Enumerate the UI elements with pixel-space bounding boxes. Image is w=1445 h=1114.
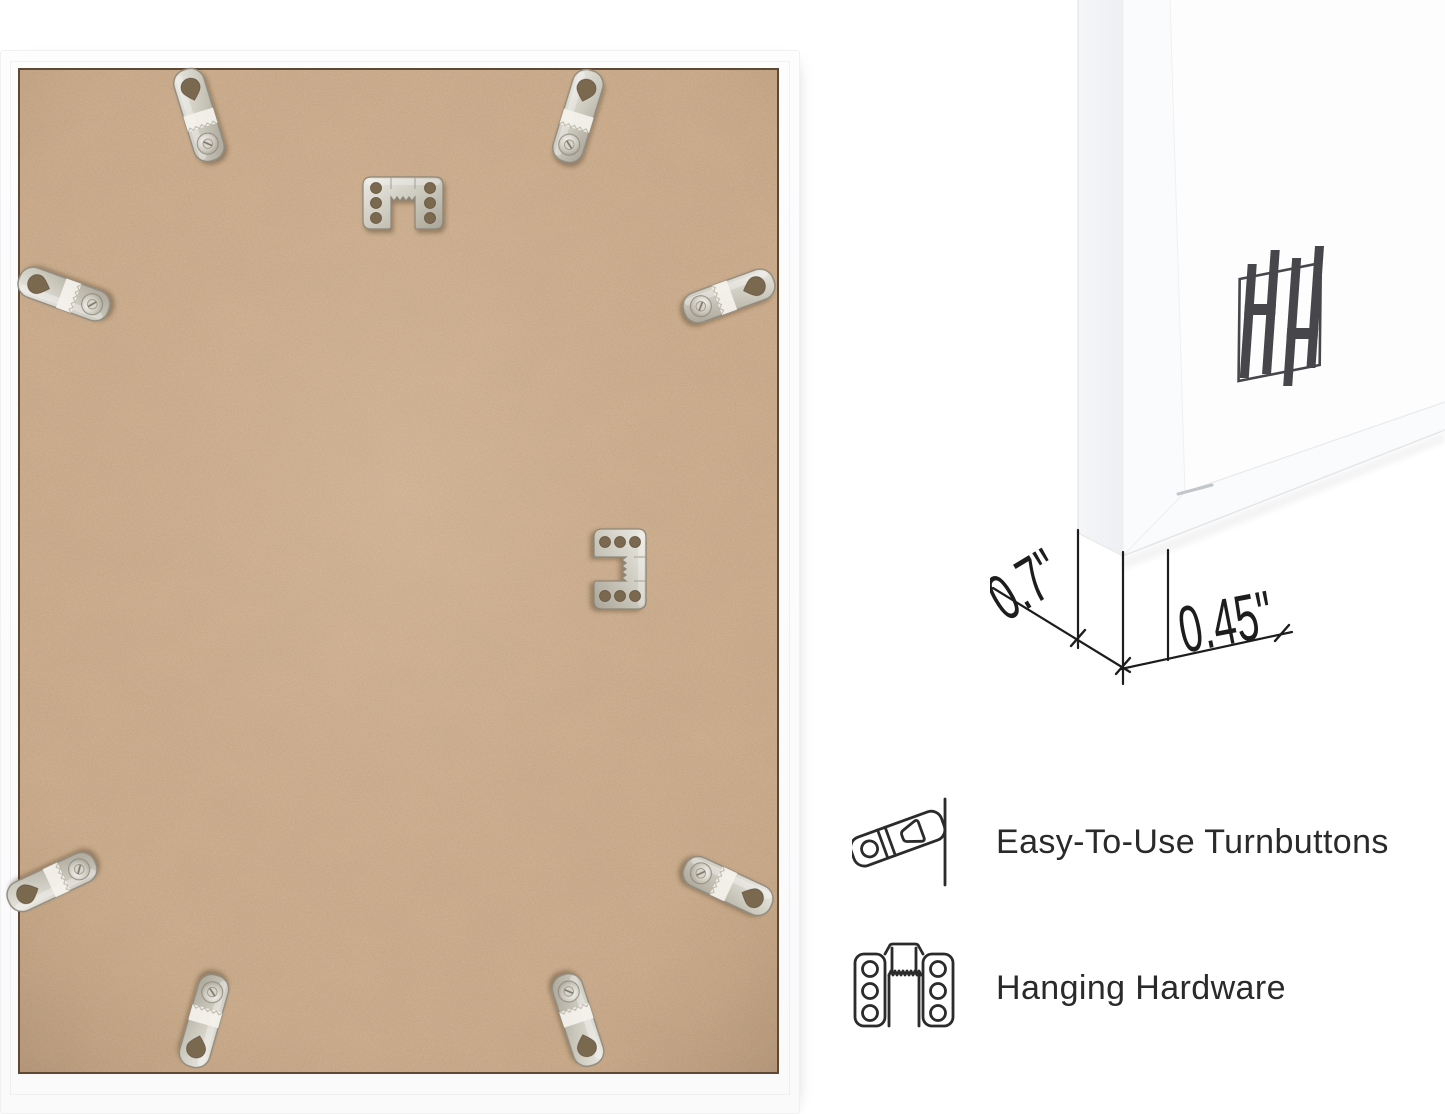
feature-label: Easy-To-Use Turnbuttons <box>996 823 1389 862</box>
feature-turnbuttons: Easy-To-Use Turnbuttons <box>852 794 1389 890</box>
depth-dimension-label: 0.7" <box>990 534 1074 635</box>
product-infographic: 0.7" 0.45" Easy-To-Use Turnbuttons <box>0 0 1445 1114</box>
frame-back-photo <box>0 50 800 1114</box>
sawtooth-hanger <box>359 171 447 235</box>
feature-label: Hanging Hardware <box>996 969 1286 1008</box>
width-dimension-label: 0.45" <box>1172 576 1279 667</box>
hanging-hardware-icon <box>852 942 956 1034</box>
turnbutton-icon <box>852 794 956 890</box>
feature-hanging-hardware: Hanging Hardware <box>852 940 1286 1036</box>
frame-corner-mockup: 0.7" 0.45" <box>990 0 1445 700</box>
sawtooth-hanger <box>588 525 652 613</box>
frame-corner-drawing <box>1078 0 1445 570</box>
